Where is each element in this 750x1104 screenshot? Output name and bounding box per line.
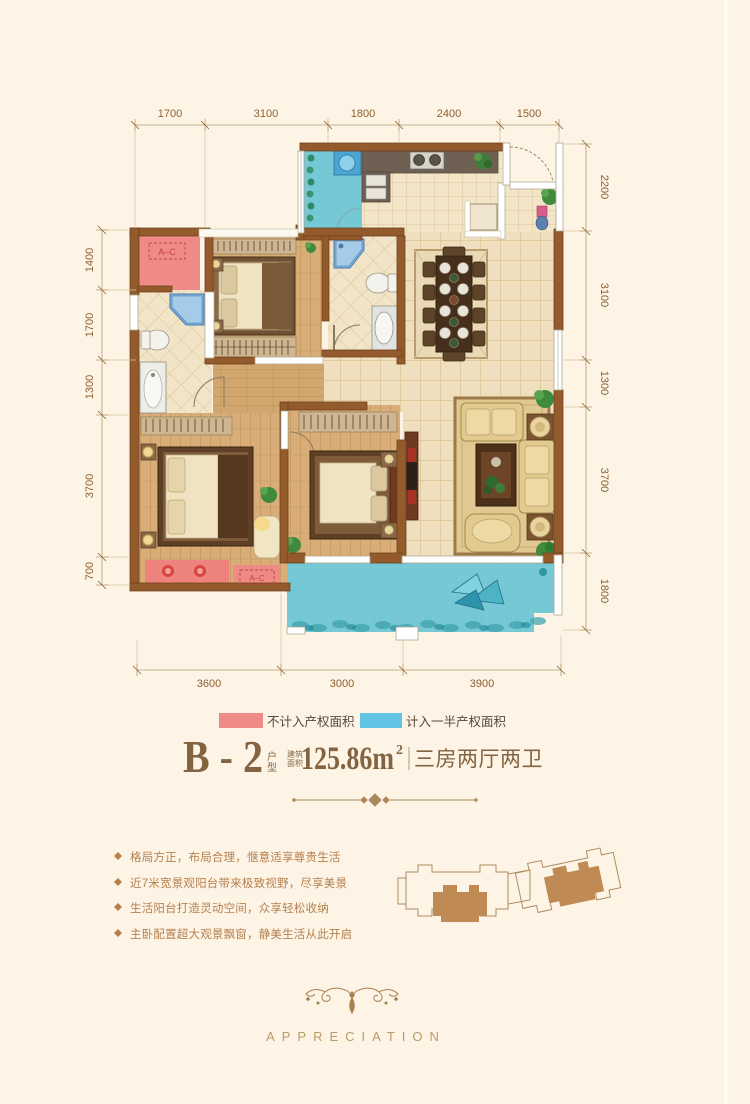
svg-text:主卧配置超大观景飘窗，静美生活从此开启: 主卧配置超大观景飘窗，静美生活从此开启 [130, 927, 352, 941]
svg-text:型: 型 [267, 761, 277, 774]
svg-text:B - 2: B - 2 [183, 732, 263, 782]
svg-text:3100: 3100 [598, 283, 610, 307]
svg-text:3000: 3000 [330, 678, 354, 690]
svg-text:A–C: A–C [158, 247, 176, 257]
svg-text:A–C: A–C [249, 574, 265, 583]
svg-text:2: 2 [396, 743, 403, 758]
svg-text:700: 700 [84, 562, 96, 580]
svg-text:APPRECIATION: APPRECIATION [266, 1029, 446, 1044]
svg-text:3600: 3600 [197, 678, 221, 690]
svg-text:1700: 1700 [158, 108, 182, 120]
svg-text:1800: 1800 [598, 579, 610, 603]
svg-text:125.86m: 125.86m [301, 741, 394, 777]
svg-text:2200: 2200 [598, 175, 610, 199]
svg-text:1800: 1800 [351, 108, 375, 120]
svg-text:计入一半产权面积: 计入一半产权面积 [406, 714, 506, 729]
svg-text:1500: 1500 [517, 108, 541, 120]
svg-text:三房两厅两卫: 三房两厅两卫 [414, 748, 543, 771]
svg-text:不计入产权面积: 不计入产权面积 [267, 714, 355, 729]
svg-text:3700: 3700 [84, 474, 96, 498]
svg-text:格局方正，布局合理，惬意适享尊贵生活: 格局方正，布局合理，惬意适享尊贵生活 [130, 850, 341, 864]
svg-text:近7米宽景观阳台带来极致视野，尽享美景: 近7米宽景观阳台带来极致视野，尽享美景 [130, 876, 347, 890]
svg-text:2400: 2400 [437, 108, 461, 120]
svg-text:1300: 1300 [84, 375, 96, 399]
svg-text:3900: 3900 [470, 678, 494, 690]
svg-text:1400: 1400 [84, 248, 96, 272]
svg-text:户: 户 [267, 750, 277, 763]
svg-text:3100: 3100 [254, 108, 278, 120]
svg-text:1300: 1300 [598, 371, 610, 395]
svg-text:1700: 1700 [84, 313, 96, 337]
svg-text:生活阳台打造灵动空间，众享轻松收纳: 生活阳台打造灵动空间，众享轻松收纳 [130, 901, 329, 915]
svg-text:3700: 3700 [598, 468, 610, 492]
